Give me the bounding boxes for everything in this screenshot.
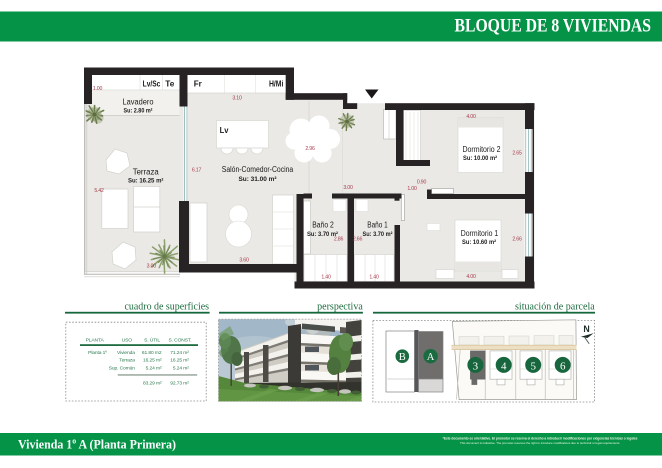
svg-text:2.96: 2.96	[305, 146, 315, 152]
svg-text:3: 3	[473, 360, 479, 372]
svg-text:situación de parcela: situación de parcela	[515, 302, 595, 313]
svg-text:PLANTA: PLANTA	[86, 338, 105, 344]
svg-text:4: 4	[501, 360, 507, 372]
svg-text:N: N	[583, 324, 589, 334]
svg-text:Vivienda: Vivienda	[117, 350, 135, 356]
svg-text:3.60: 3.60	[239, 258, 249, 264]
svg-text:Sup. Común: Sup. Común	[109, 365, 136, 371]
svg-text:83.29 m²: 83.29 m²	[143, 381, 162, 387]
svg-text:Lv/Sc: Lv/Sc	[143, 79, 161, 89]
svg-text:2.66: 2.66	[512, 237, 522, 243]
svg-text:Su: 10.60 m²: Su: 10.60 m²	[462, 239, 496, 246]
svg-text:5.24 m²: 5.24 m²	[173, 365, 189, 371]
svg-text:Terraza: Terraza	[133, 168, 160, 177]
svg-text:Vivienda 1º A (Planta Primera): Vivienda 1º A (Planta Primera)	[18, 437, 176, 452]
svg-text:1.40: 1.40	[321, 275, 331, 281]
svg-text:Su: 2.80 m²: Su: 2.80 m²	[124, 108, 154, 115]
svg-text:Terraza: Terraza	[119, 358, 135, 364]
svg-text:*Este documento es orientativo: *Este documento es orientativo. El promo…	[443, 437, 638, 441]
svg-text:S. ÚTIL: S. ÚTIL	[144, 337, 160, 344]
svg-text:BLOQUE DE 8 VIVIENDAS: BLOQUE DE 8 VIVIENDAS	[455, 16, 652, 37]
svg-text:Lv: Lv	[220, 125, 229, 135]
svg-text:Dormitorio 1: Dormitorio 1	[461, 229, 499, 238]
svg-text:16.25 m²: 16.25 m²	[170, 358, 189, 364]
svg-text:Baño 1: Baño 1	[367, 221, 388, 230]
svg-text:2.86: 2.86	[334, 237, 344, 243]
svg-text:Su: 16.25 m²: Su: 16.25 m²	[128, 178, 164, 185]
svg-text:perspectiva: perspectiva	[317, 302, 363, 313]
svg-text:61.80 m2: 61.80 m2	[142, 350, 162, 356]
svg-text:Salón-Comedor-Cocina: Salón-Comedor-Cocina	[222, 165, 294, 174]
svg-text:Su: 10.00 m²: Su: 10.00 m²	[463, 155, 497, 162]
svg-text:A: A	[427, 352, 435, 363]
svg-text:1.00: 1.00	[407, 186, 417, 192]
svg-text:B: B	[399, 352, 406, 363]
svg-text:Planta 1º: Planta 1º	[88, 350, 107, 356]
svg-text:6.17: 6.17	[192, 168, 202, 174]
svg-text:USO: USO	[122, 338, 133, 344]
svg-text:Dormitorio 2: Dormitorio 2	[463, 145, 501, 154]
svg-text:1.40: 1.40	[369, 275, 379, 281]
svg-text:2.65: 2.65	[512, 151, 522, 157]
svg-text:Fr: Fr	[194, 79, 203, 89]
svg-text:2.66: 2.66	[353, 237, 363, 243]
svg-text:This document is indicative. T: This document is indicative. The promote…	[460, 441, 620, 445]
svg-text:0.90: 0.90	[417, 180, 427, 186]
svg-text:Lavadero: Lavadero	[123, 98, 155, 107]
svg-text:Su: 3.70 m²: Su: 3.70 m²	[363, 231, 393, 238]
svg-text:5.24 m²: 5.24 m²	[146, 365, 162, 371]
svg-text:S. CONST.: S. CONST.	[168, 338, 191, 344]
svg-text:16.25 m²: 16.25 m²	[143, 358, 162, 364]
svg-text:H/Mi: H/Mi	[269, 79, 284, 89]
svg-text:5: 5	[530, 360, 536, 372]
svg-text:5.42: 5.42	[94, 188, 104, 194]
svg-text:71.24 m²: 71.24 m²	[170, 350, 189, 356]
svg-text:3.00: 3.00	[343, 185, 353, 191]
svg-text:6: 6	[560, 360, 566, 372]
svg-text:Baño 2: Baño 2	[312, 221, 334, 230]
svg-text:Su: 31.00 m²: Su: 31.00 m²	[239, 176, 277, 183]
svg-text:3.00: 3.00	[147, 264, 157, 270]
svg-text:92.73 m²: 92.73 m²	[170, 381, 189, 387]
svg-text:cuadro de superficies: cuadro de superficies	[125, 302, 210, 313]
svg-text:4.00: 4.00	[466, 274, 476, 280]
svg-text:1.00: 1.00	[93, 86, 103, 92]
svg-text:4.00: 4.00	[466, 114, 476, 120]
svg-text:Te: Te	[165, 79, 174, 89]
svg-text:3.10: 3.10	[232, 95, 242, 101]
